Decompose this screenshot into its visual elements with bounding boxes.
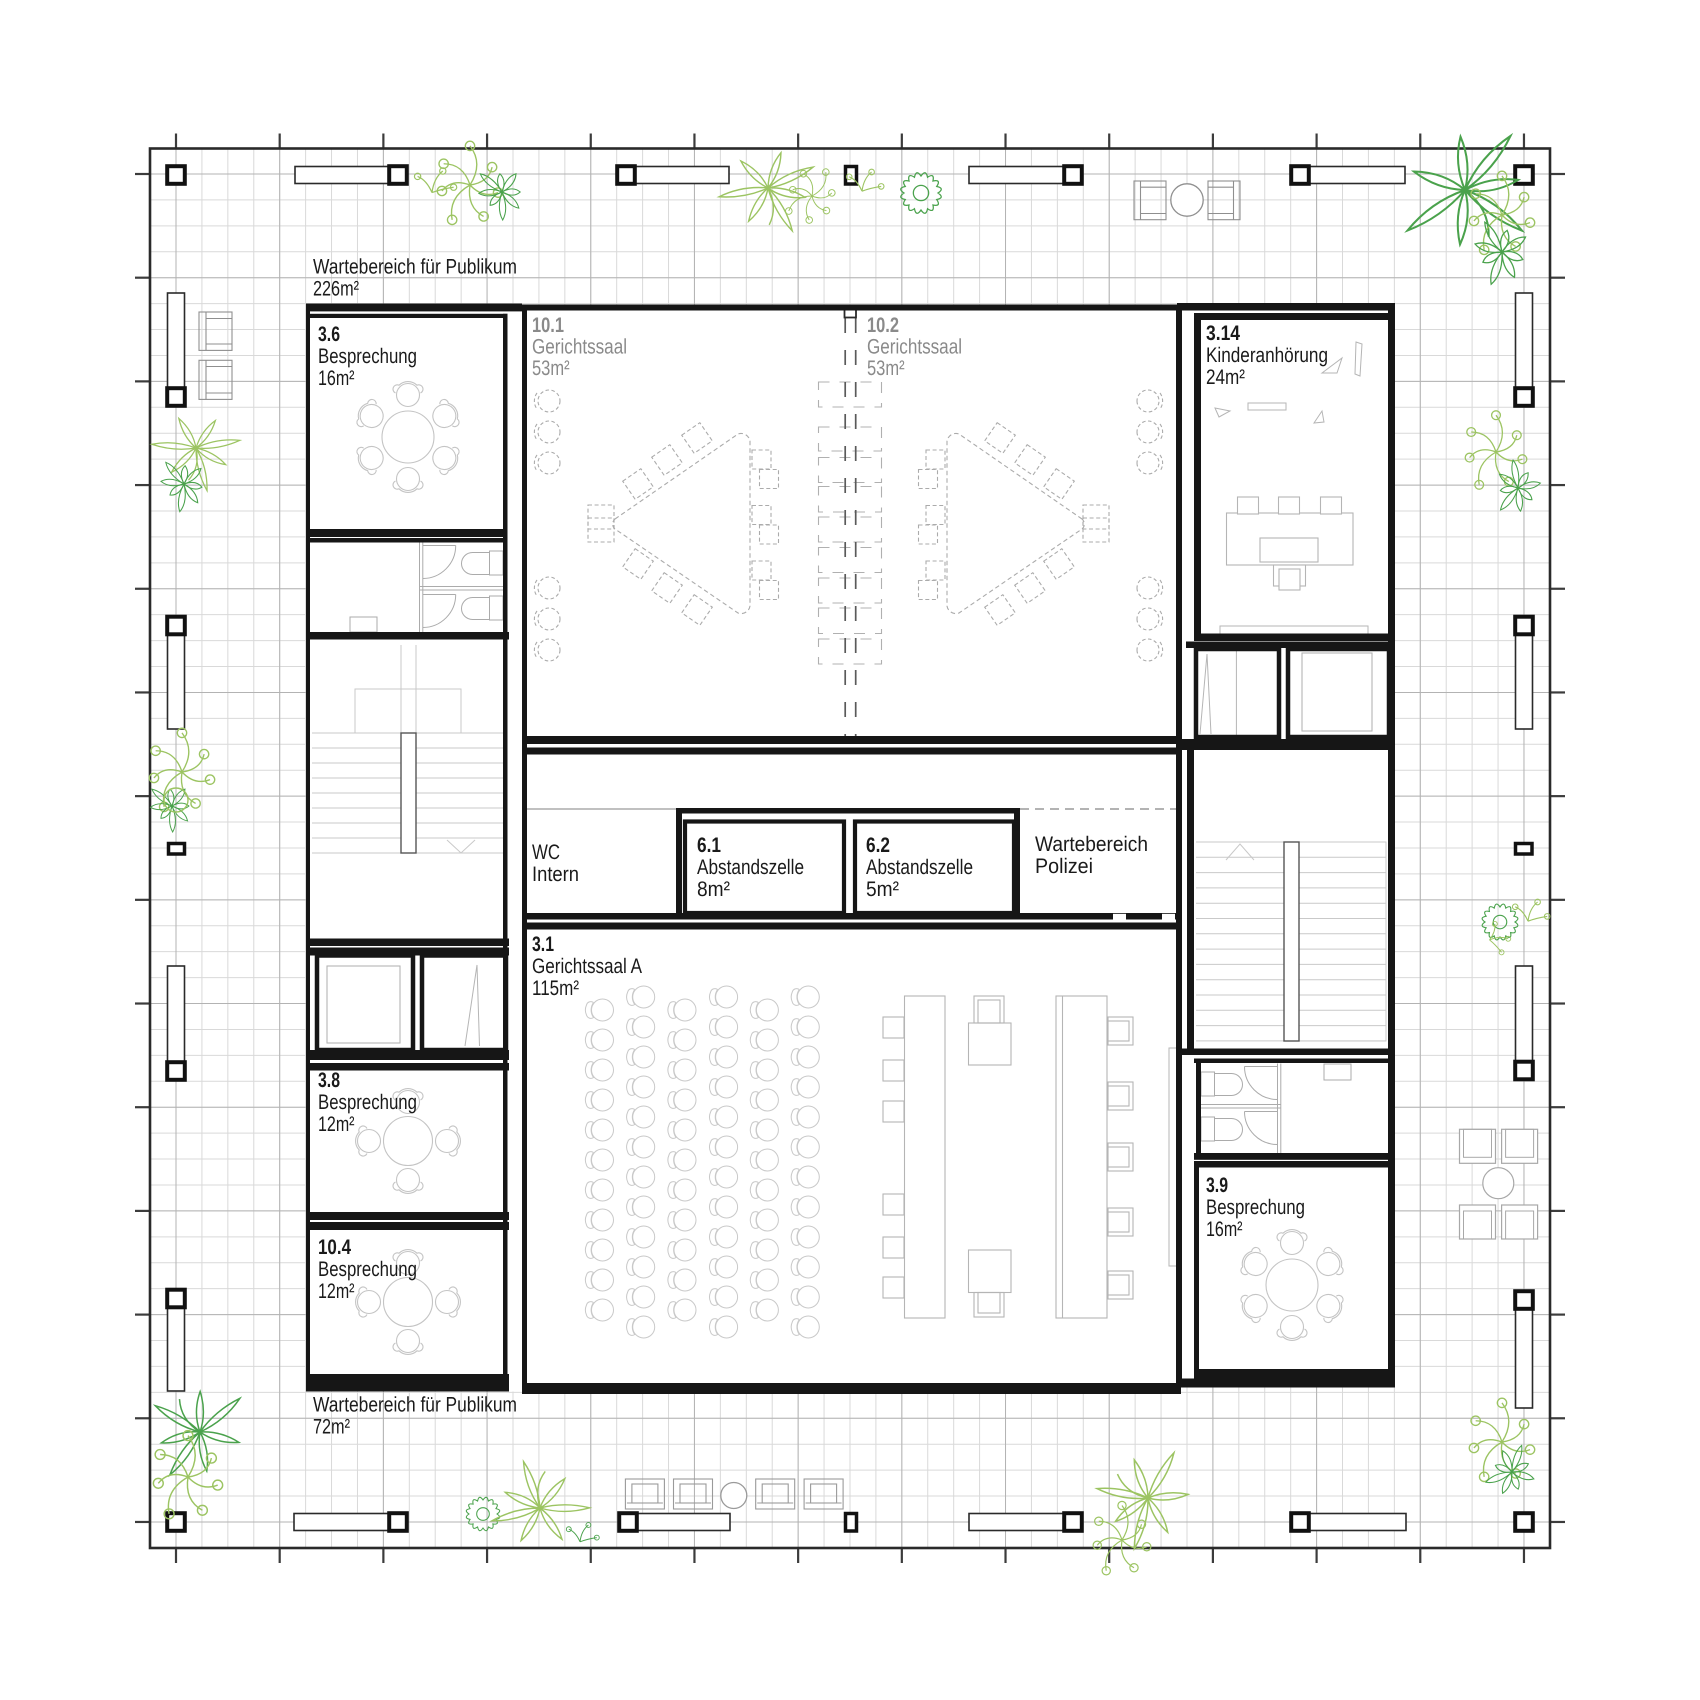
svg-text:115m²: 115m² [532,977,579,1000]
svg-text:12m²: 12m² [318,1113,355,1136]
svg-text:3.1: 3.1 [532,933,554,956]
svg-text:10.4: 10.4 [318,1236,351,1259]
svg-text:5m²: 5m² [866,878,899,901]
svg-text:Besprechung: Besprechung [318,345,417,368]
svg-text:3.6: 3.6 [318,323,340,346]
svg-text:Wartebereich für Publikum: Wartebereich für Publikum [313,1394,517,1417]
svg-text:72m²: 72m² [313,1416,350,1439]
svg-text:Kinderanhörung: Kinderanhörung [1206,344,1328,367]
svg-text:Wartebereich: Wartebereich [1035,833,1148,856]
svg-text:53m²: 53m² [867,357,905,380]
svg-text:Abstandszelle: Abstandszelle [866,856,973,879]
svg-text:53m²: 53m² [532,357,570,380]
svg-text:226m²: 226m² [313,278,359,301]
svg-text:6.2: 6.2 [866,834,890,857]
svg-text:10.1: 10.1 [532,314,564,337]
svg-text:Polizei: Polizei [1035,855,1093,878]
svg-text:8m²: 8m² [697,878,730,901]
svg-text:3.14: 3.14 [1206,322,1240,345]
svg-text:Gerichtssaal: Gerichtssaal [867,336,962,359]
svg-text:Abstandszelle: Abstandszelle [697,856,804,879]
svg-text:Gerichtssaal: Gerichtssaal [532,336,627,359]
svg-text:24m²: 24m² [1206,366,1245,389]
svg-text:12m²: 12m² [318,1280,355,1303]
svg-text:Wartebereich für Publikum: Wartebereich für Publikum [313,256,517,279]
svg-text:10.2: 10.2 [867,314,899,337]
svg-text:Besprechung: Besprechung [318,1258,417,1281]
svg-text:3.9: 3.9 [1206,1174,1228,1197]
svg-text:16m²: 16m² [1206,1218,1243,1241]
svg-text:Intern: Intern [532,863,579,886]
svg-text:Gerichtssaal A: Gerichtssaal A [532,955,642,978]
svg-text:3.8: 3.8 [318,1069,340,1092]
svg-text:6.1: 6.1 [697,834,721,857]
svg-text:Besprechung: Besprechung [318,1091,417,1114]
svg-text:WC: WC [532,841,560,864]
svg-text:16m²: 16m² [318,367,355,390]
svg-text:Besprechung: Besprechung [1206,1196,1305,1219]
